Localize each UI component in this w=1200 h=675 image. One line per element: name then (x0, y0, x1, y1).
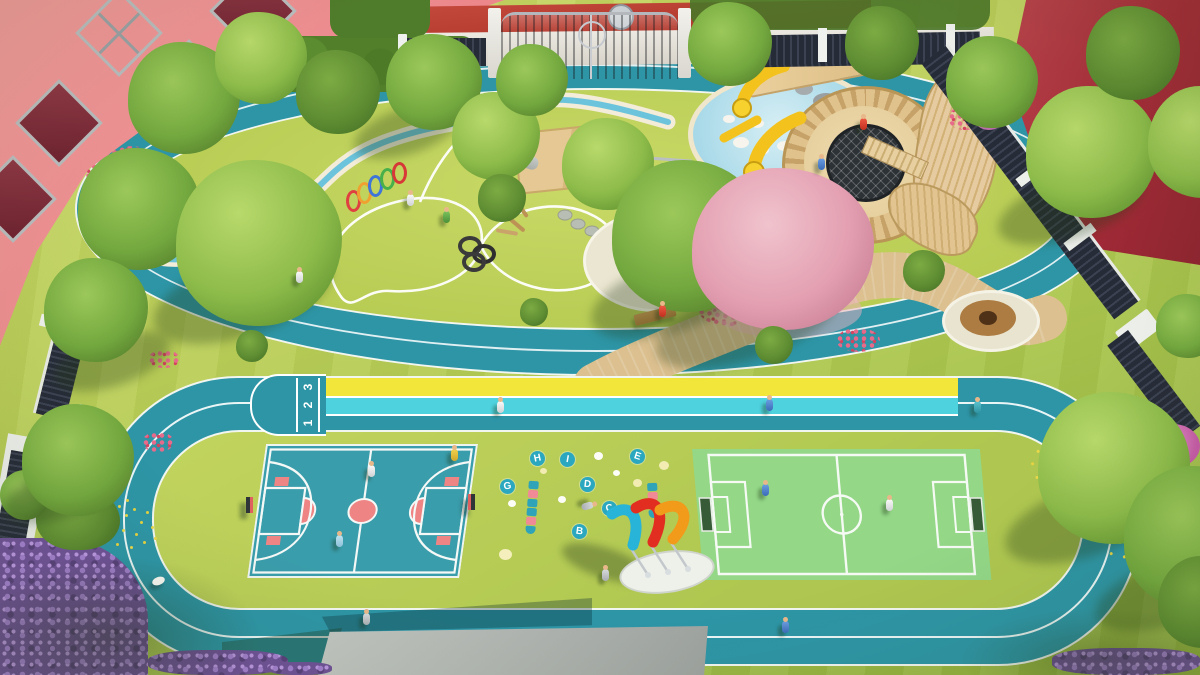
person (363, 613, 370, 625)
slide-poles (630, 541, 688, 575)
playground-aerial-render: 3 2 1 (0, 0, 1200, 675)
bush (903, 250, 945, 292)
person (974, 401, 981, 413)
tree (296, 50, 380, 134)
diamond-window (0, 155, 57, 243)
tree (496, 44, 568, 116)
tree (946, 36, 1038, 128)
person (818, 158, 825, 170)
person (762, 484, 769, 496)
fence-post (818, 28, 827, 62)
tower-slide-straight (724, 120, 757, 138)
slide-pole-finials (645, 566, 691, 578)
tree (176, 160, 342, 326)
person (407, 194, 414, 206)
tree (1086, 6, 1180, 100)
tube-exit (733, 99, 751, 117)
person (886, 499, 893, 511)
flag-slide-cyan (612, 510, 636, 545)
tree-line-strip (330, 0, 430, 38)
diamond-window (15, 79, 103, 167)
tree (215, 12, 307, 104)
tree (688, 2, 772, 86)
person (602, 569, 609, 581)
person (336, 535, 343, 547)
bush (478, 174, 526, 222)
round-bush (22, 404, 134, 516)
person (766, 399, 773, 411)
bush (236, 330, 268, 362)
lavender-bed (268, 662, 332, 675)
canopy-roof (318, 626, 708, 675)
bush (755, 326, 793, 364)
person (782, 621, 789, 633)
bush (520, 298, 548, 326)
cherry-blossom-tree (692, 168, 874, 330)
tree (44, 258, 148, 362)
person (860, 118, 867, 130)
gate-emblem (578, 21, 606, 49)
tree (1026, 86, 1158, 218)
person (368, 465, 375, 477)
person (659, 305, 666, 317)
gate-seam (590, 15, 593, 79)
tree (845, 6, 919, 80)
person (296, 271, 303, 283)
person (497, 401, 504, 413)
tower-tube-slide (754, 118, 800, 168)
person (451, 449, 458, 461)
person (443, 211, 450, 223)
flower-bed (142, 432, 174, 452)
